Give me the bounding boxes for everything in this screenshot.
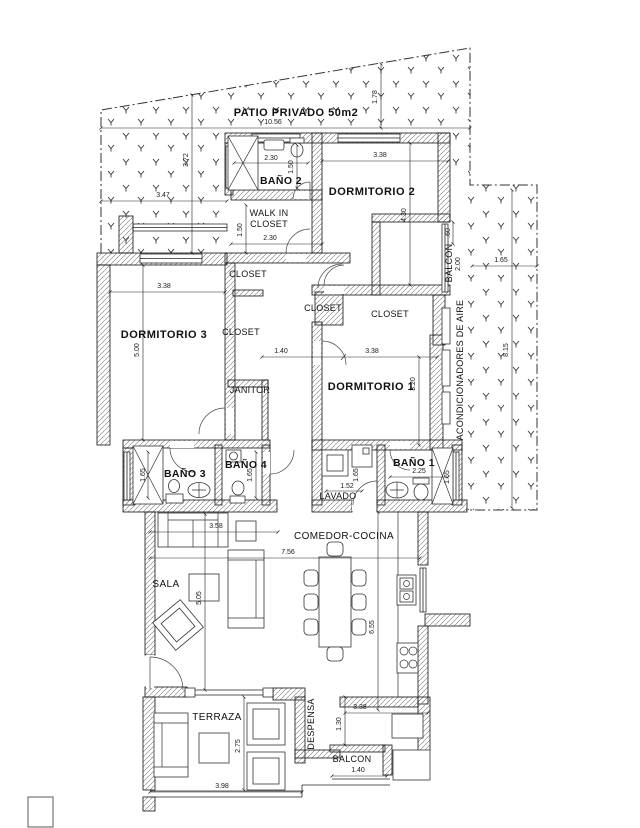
dim-2-75: 2.75 bbox=[235, 739, 242, 753]
dim-1-78: 1.78 bbox=[372, 90, 379, 104]
sofa-main bbox=[158, 513, 228, 547]
window-cocina-east bbox=[420, 568, 426, 612]
dining-table bbox=[319, 557, 351, 647]
wall-balcon2-right bbox=[383, 745, 392, 775]
door-hall-closet bbox=[318, 264, 342, 288]
dim-2-30-walkin: 2.30 bbox=[263, 235, 277, 242]
sink-banio2 bbox=[264, 140, 284, 150]
dim-1-52: 1.52 bbox=[340, 483, 354, 490]
label-walkin-line1: WALK IN bbox=[250, 208, 289, 218]
dim-3-47: 3.47 bbox=[156, 192, 170, 199]
wall-stub bbox=[119, 216, 133, 253]
window-banio1-right bbox=[453, 452, 459, 500]
ac-units bbox=[442, 308, 450, 424]
label-dormitorio-1: DORMITORIO 1 bbox=[328, 381, 414, 393]
dim-1-65-lavado: 1.65 bbox=[353, 468, 360, 482]
wall-dorm2-right bbox=[438, 133, 450, 222]
dim-1-50-walkin: 1.50 bbox=[237, 223, 244, 237]
label-closet-c: CLOSET bbox=[304, 303, 342, 313]
label-banio-3: BAÑO 3 bbox=[164, 467, 206, 480]
label-acondicionadores: ACONDICIONADORES DE AIRE bbox=[455, 300, 465, 441]
wall-lavado-banio1-divider bbox=[377, 445, 385, 505]
wall-balcon2-top bbox=[330, 745, 385, 752]
dim-1-40-balcon: 1.40 bbox=[351, 767, 365, 774]
label-balcon-top: BALCON bbox=[444, 244, 454, 283]
dim-5-05: 5.05 bbox=[196, 591, 203, 605]
railing-balcon2 bbox=[332, 779, 390, 785]
side-table-sala bbox=[236, 521, 256, 541]
toilet-banio4 bbox=[230, 481, 245, 503]
label-dormitorio-3: DORMITORIO 3 bbox=[121, 329, 207, 341]
dim-2-30-banio2: 2.30 bbox=[264, 155, 278, 162]
dim-3-98: 3.98 bbox=[215, 783, 229, 790]
label-closet-a: CLOSET bbox=[229, 269, 267, 279]
wall-dorm3-left bbox=[97, 265, 110, 445]
label-balcon-bottom: BALCON bbox=[333, 754, 372, 764]
dim-1-65-banio3: 1.65 bbox=[140, 468, 147, 482]
label-despensa: DESPENSA bbox=[306, 698, 316, 749]
armchair-sala bbox=[153, 600, 204, 651]
toilet-banio3 bbox=[166, 480, 183, 504]
label-lavado: LAVADO bbox=[320, 491, 357, 501]
sliding-door-terraza bbox=[185, 688, 273, 697]
dim-4-30: 4.30 bbox=[401, 208, 408, 222]
dim-3-38-dorm3: 3.38 bbox=[157, 283, 171, 290]
cooktop bbox=[397, 643, 418, 673]
wall-cocina-east-lower bbox=[418, 626, 428, 704]
dim-1-65-patio: 1.65 bbox=[494, 257, 508, 264]
wall-terraza-left bbox=[143, 697, 155, 790]
dim-0-60: .60 bbox=[445, 228, 452, 238]
label-walkin-line2: CLOSET bbox=[250, 219, 288, 229]
dryer-lavado bbox=[352, 445, 372, 467]
door-banio4 bbox=[263, 450, 294, 474]
label-sala: SALA bbox=[152, 579, 179, 590]
dim-3-38-dorm2: 3.38 bbox=[373, 152, 387, 159]
stove bbox=[397, 575, 416, 605]
floor-plan-page: 10.56 1.78 3.47 3.72 2.30 1.50 3.38 4.30… bbox=[0, 0, 640, 828]
wall-dorm2-left bbox=[312, 133, 322, 253]
dim-5-00: 5.00 bbox=[134, 343, 141, 357]
wall-dorm1-right bbox=[430, 335, 443, 450]
dim-1-50-banio2: 1.50 bbox=[288, 160, 295, 174]
window-dorm3-top bbox=[140, 254, 202, 263]
dim-1-40-hall: 1.40 bbox=[274, 348, 288, 355]
wall-balcon-top bbox=[372, 214, 450, 222]
dim-1-30: 1.30 bbox=[336, 717, 343, 731]
patio-lawn-right bbox=[466, 185, 537, 510]
dim-3-38-dorm1: 3.38 bbox=[365, 348, 379, 355]
wall-lavado-bottom bbox=[312, 500, 352, 512]
label-patio-privado: PATIO PRIVADO 50m2 bbox=[234, 107, 359, 119]
label-banio-4: BAÑO 4 bbox=[225, 458, 267, 471]
dim-8-15: 8.15 bbox=[503, 343, 510, 357]
wall-banio1-bottom bbox=[377, 500, 467, 512]
label-closet-d: CLOSET bbox=[371, 309, 409, 319]
door-dorm1 bbox=[313, 341, 346, 365]
wall-terraza-top-left bbox=[145, 687, 187, 697]
dim-3-58: 3.58 bbox=[209, 523, 223, 530]
dim-3-72: 3.72 bbox=[183, 153, 190, 167]
table-terraza bbox=[199, 733, 229, 763]
chair-terraza-2 bbox=[247, 752, 285, 790]
door-sala-entry bbox=[146, 655, 183, 690]
wall-east-stub bbox=[425, 614, 470, 626]
wall-cocina-south bbox=[340, 697, 418, 707]
label-janitor: JANITOR bbox=[230, 385, 271, 395]
label-terraza: TERRAZA bbox=[192, 712, 241, 723]
chair-terraza-1 bbox=[247, 703, 285, 745]
dim-6-55: 6.55 bbox=[369, 620, 376, 634]
wall-banio34-divider bbox=[215, 445, 222, 505]
wall-closet-divider bbox=[233, 290, 263, 296]
toilet-banio1 bbox=[413, 478, 429, 500]
window-dorm2-top bbox=[338, 134, 400, 142]
dim-1-65-banio1: 1.65 bbox=[444, 470, 451, 484]
dim-10-56: 10.56 bbox=[264, 119, 282, 126]
railing-terraza bbox=[150, 785, 332, 797]
garden-fence bbox=[133, 224, 227, 231]
coffee-table-sala bbox=[189, 574, 219, 601]
dim-2-25: 2.25 bbox=[412, 468, 426, 475]
planter-corner bbox=[28, 797, 53, 827]
dim-3-38-cocina: 3.38 bbox=[353, 704, 367, 711]
label-comedor-cocina: COMEDOR-COCINA bbox=[294, 531, 394, 542]
window-banio3-left bbox=[124, 452, 130, 500]
floor-plan-drawing: 10.56 1.78 3.47 3.72 2.30 1.50 3.38 4.30… bbox=[0, 0, 640, 828]
exterior-unit-1 bbox=[392, 714, 423, 738]
wall-cocina-east-upper bbox=[418, 512, 428, 565]
furniture bbox=[28, 136, 453, 827]
wall-balcon-left bbox=[372, 222, 380, 295]
dim-7-56: 7.56 bbox=[281, 549, 295, 556]
dim-2-00: 2.00 bbox=[455, 257, 462, 271]
sink-banio1 bbox=[386, 482, 408, 498]
sink-banio3 bbox=[188, 483, 210, 499]
wall-terraza-left-foot bbox=[143, 797, 155, 811]
sofa-terraza bbox=[154, 713, 188, 777]
label-banio-2: BAÑO 2 bbox=[260, 174, 302, 187]
washer-lavado bbox=[322, 450, 348, 476]
sofa-side bbox=[228, 550, 264, 628]
exterior-unit-2 bbox=[393, 750, 430, 780]
label-banio-1: BAÑO 1 bbox=[393, 456, 435, 469]
label-closet-b: CLOSET bbox=[222, 327, 260, 337]
door-dorm3 bbox=[199, 408, 234, 434]
label-dormitorio-2: DORMITORIO 2 bbox=[329, 186, 415, 198]
